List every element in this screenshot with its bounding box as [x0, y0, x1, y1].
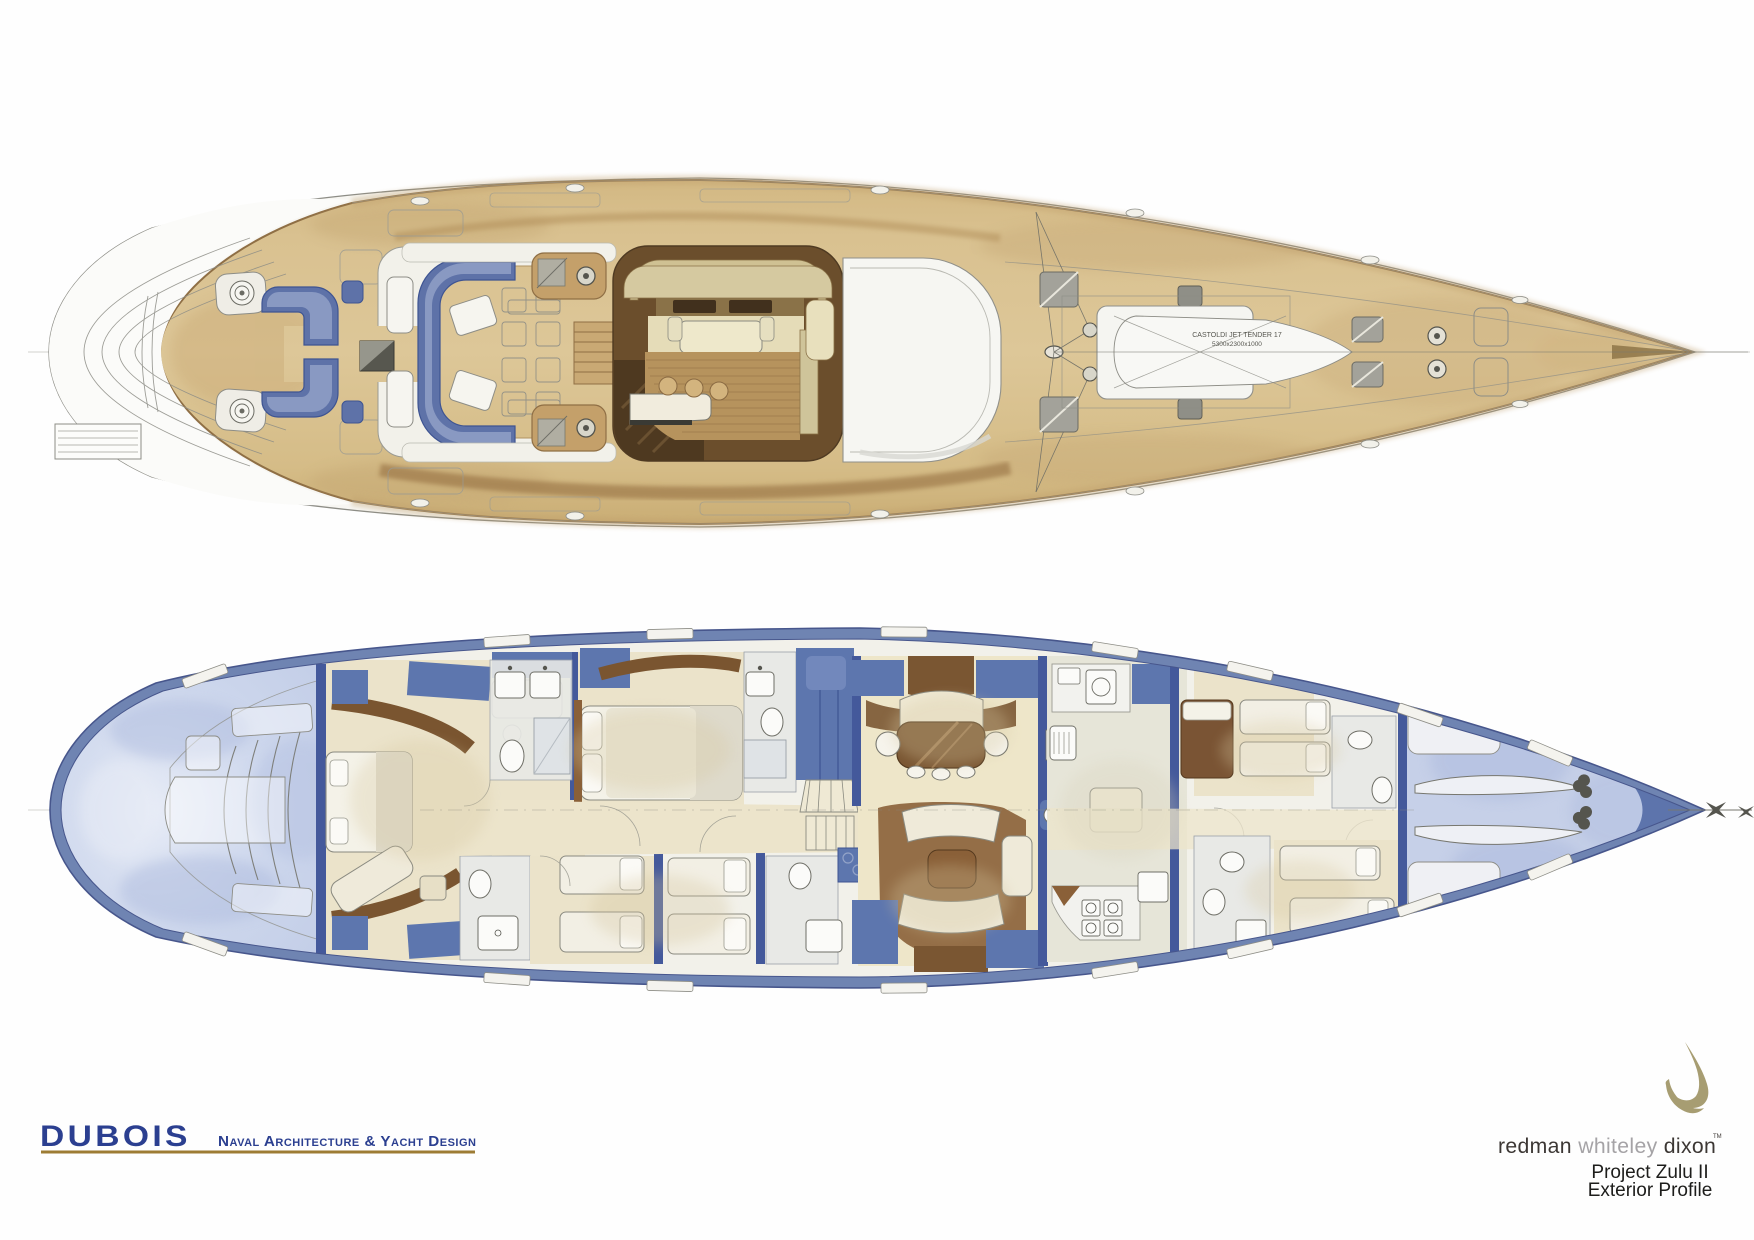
svg-text:redman whiteley dixon: redman whiteley dixon	[1498, 1135, 1716, 1158]
svg-text:5300x2300x1000: 5300x2300x1000	[1212, 341, 1262, 348]
svg-text:CASTOLDI JET TENDER 17: CASTOLDI JET TENDER 17	[1192, 332, 1282, 339]
svg-text:Naval Architecture & Yacht Des: Naval Architecture & Yacht Design	[218, 1133, 476, 1150]
svg-text:TM: TM	[1713, 1134, 1722, 1140]
svg-text:DUBOIS: DUBOIS	[40, 1119, 191, 1153]
svg-text:Exterior Profile: Exterior Profile	[1588, 1180, 1713, 1201]
